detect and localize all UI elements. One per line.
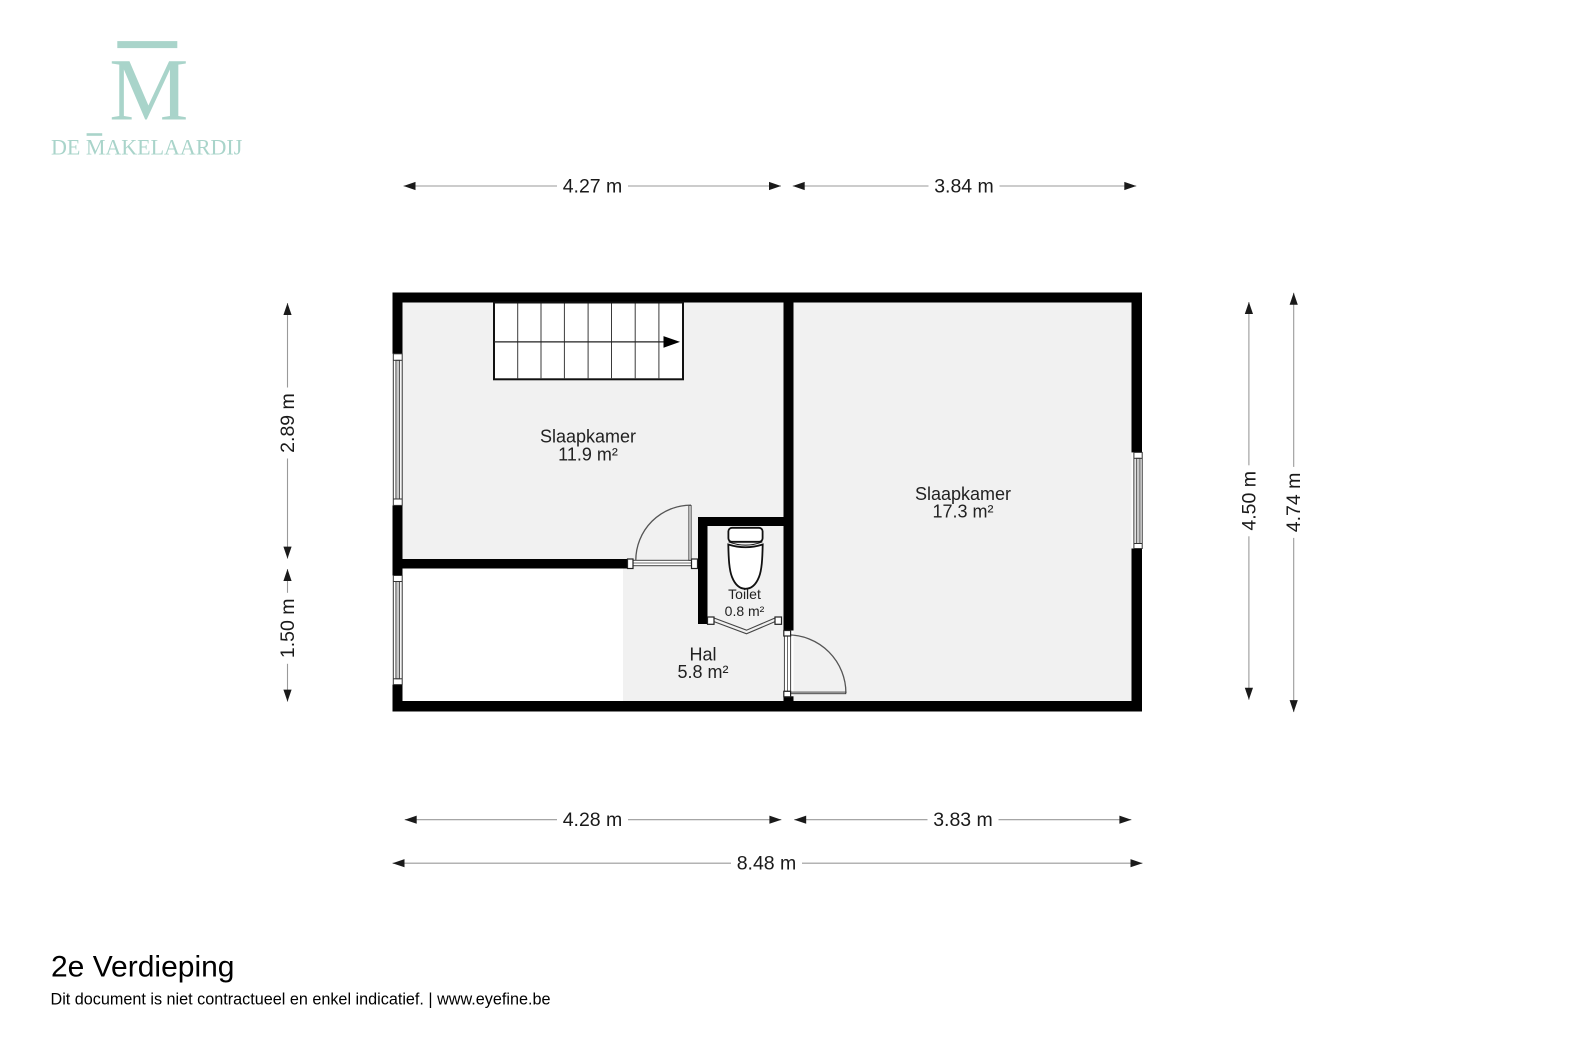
svg-text:17.3 m²: 17.3 m² [932, 502, 993, 522]
svg-text:1.50 m: 1.50 m [277, 598, 299, 658]
svg-text:M: M [109, 41, 188, 139]
svg-text:11.9 m²: 11.9 m² [558, 445, 618, 465]
svg-text:0.8 m²: 0.8 m² [725, 603, 765, 619]
svg-text:5.8 m²: 5.8 m² [677, 662, 728, 682]
svg-text:8.48 m: 8.48 m [737, 853, 797, 875]
svg-text:2.89 m: 2.89 m [277, 393, 299, 453]
svg-text:3.84 m: 3.84 m [934, 175, 994, 197]
svg-text:4.50 m: 4.50 m [1238, 471, 1260, 531]
svg-text:4.27 m: 4.27 m [563, 175, 623, 197]
svg-text:Slaapkamer: Slaapkamer [540, 426, 636, 446]
svg-text:4.74 m: 4.74 m [1283, 473, 1305, 533]
svg-text:Toilet: Toilet [728, 586, 761, 602]
svg-text:Dit document is niet contractu: Dit document is niet contractueel en enk… [51, 991, 551, 1009]
svg-text:2e Verdieping: 2e Verdieping [51, 951, 235, 984]
svg-text:4.28 m: 4.28 m [563, 809, 623, 831]
svg-text:3.83 m: 3.83 m [933, 809, 993, 831]
svg-text:DE MAKELAARDIJ: DE MAKELAARDIJ [51, 134, 243, 159]
